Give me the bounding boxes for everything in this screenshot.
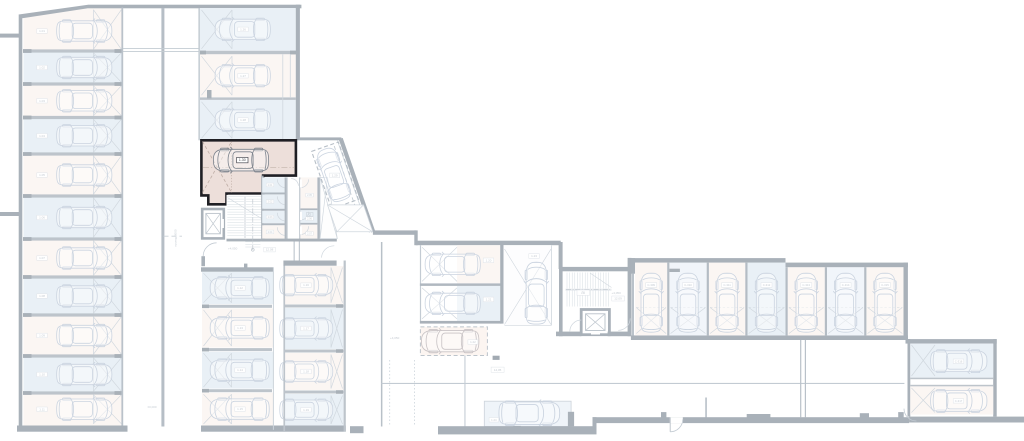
svg-text:1.05: 1.05 [39, 173, 45, 177]
svg-text:1.19: 1.19 [303, 408, 309, 412]
svg-text:+4,050: +4,050 [390, 336, 400, 340]
svg-text:2.06: 2.06 [307, 218, 312, 221]
svg-text:1.17: 1.17 [303, 327, 309, 331]
svg-text:12.09: 12.09 [614, 297, 622, 301]
svg-text:С-313: С-313 [802, 283, 810, 287]
svg-text:С-309: С-309 [647, 283, 655, 287]
svg-text:1.30: 1.30 [239, 158, 246, 162]
svg-text:1.09: 1.09 [39, 334, 45, 338]
svg-text:С-317: С-317 [955, 399, 963, 403]
svg-text:1.06: 1.06 [39, 216, 45, 220]
svg-text:1.26: 1.26 [240, 28, 246, 32]
svg-text:1.13: 1.13 [237, 326, 243, 330]
svg-text:С-314: С-314 [842, 283, 850, 287]
svg-text:1.04: 1.04 [39, 134, 45, 138]
svg-text:14,05: 14,05 [494, 368, 502, 372]
svg-text:1.20: 1.20 [486, 258, 492, 262]
svg-text:+4,050: +4,050 [228, 247, 238, 251]
svg-text:1.16: 1.16 [303, 283, 309, 287]
svg-text:С-312: С-312 [763, 283, 771, 287]
svg-text:проезд 6000: проезд 6000 [174, 229, 178, 246]
svg-text:+4,050: +4,050 [612, 291, 622, 295]
svg-text:2.05: 2.05 [307, 194, 312, 197]
svg-text:1.23: 1.23 [531, 254, 537, 258]
svg-text:1.15: 1.15 [237, 407, 243, 411]
svg-text:1.24: 1.24 [491, 418, 497, 422]
svg-text:1.12: 1.12 [237, 286, 243, 290]
svg-text:1.11: 1.11 [39, 407, 45, 411]
svg-text:ЛК: ЛК [581, 291, 585, 295]
svg-text:2.07: 2.07 [307, 233, 312, 236]
svg-text:2.04: 2.04 [268, 231, 273, 234]
svg-text:1.28: 1.28 [240, 118, 246, 122]
svg-text:1.22: 1.22 [470, 340, 476, 344]
svg-text:1.02: 1.02 [39, 66, 45, 70]
svg-text:2.02: 2.02 [268, 201, 273, 204]
svg-text:1.10: 1.10 [39, 373, 45, 377]
svg-text:±0,000: ±0,000 [147, 405, 156, 409]
svg-text:1.29: 1.29 [332, 173, 338, 177]
svg-text:1.07: 1.07 [39, 256, 45, 260]
svg-text:1.08: 1.08 [39, 294, 45, 298]
svg-text:1.01: 1.01 [39, 29, 45, 33]
svg-text:1.18: 1.18 [303, 370, 309, 374]
svg-text:1.14: 1.14 [237, 368, 243, 372]
svg-text:С-316: С-316 [955, 359, 963, 363]
svg-text:С-311: С-311 [723, 283, 731, 287]
svg-text:С-315: С-315 [881, 283, 889, 287]
svg-text:12.08: 12.08 [266, 248, 274, 252]
svg-text:1.21: 1.21 [486, 298, 492, 302]
svg-text:1.03: 1.03 [39, 99, 45, 103]
svg-text:1.27: 1.27 [240, 74, 246, 78]
svg-text:2.03: 2.03 [268, 216, 273, 219]
svg-text:С-310: С-310 [684, 283, 692, 287]
svg-text:2.01: 2.01 [268, 184, 273, 187]
